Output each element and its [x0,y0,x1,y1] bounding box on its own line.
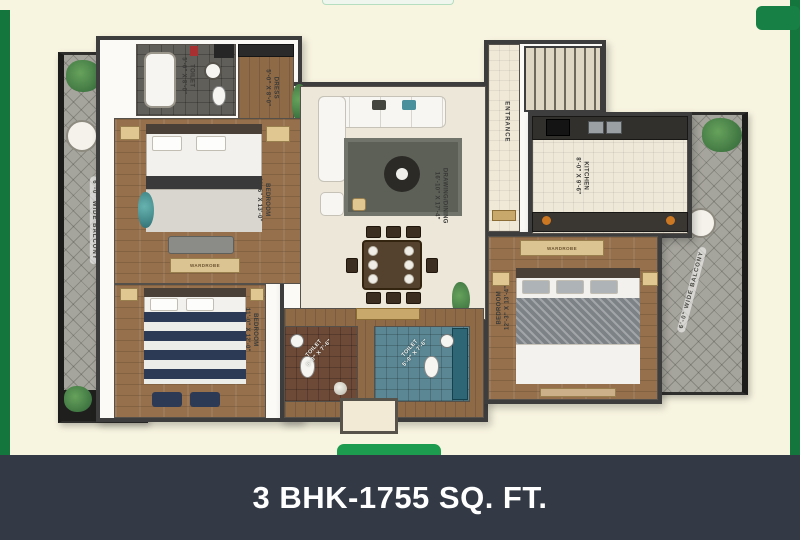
doormat-icon [492,210,516,221]
bench-icon [168,236,234,254]
bed-blanket-icon [146,189,262,232]
chair-icon [346,258,358,273]
nightstand-icon [642,272,658,286]
bed-duvet-icon [144,312,246,384]
room-label-toilet-top: TOILET5'-0" X 8'-0" [179,57,195,94]
sink-icon [588,121,604,134]
room-label-kitchen: KITCHEN8'-0" X 9'-6" [573,157,589,194]
sink-icon [606,121,622,134]
plate-icon [368,260,378,270]
pillow-icon [150,298,178,311]
balcony-table-icon [66,120,98,152]
threshold-icon [356,308,420,320]
bed-duvet-icon [516,298,640,344]
cushion-icon [402,100,416,110]
bed-headboard-icon [516,268,640,278]
plate-icon [368,246,378,256]
nightstand-icon [266,126,290,142]
decor-icon [190,46,198,56]
side-stool-icon [352,198,366,211]
toilet-wc-icon [424,356,439,378]
floor-plan[interactable]: 6'-0" WIDE BALCONY 6'-0" WIDE BALCONY TO… [0,0,800,455]
shower-cabinet-icon [452,328,468,400]
room-label-bedroom-bottom: BEDROOM11'-0" X 12'-0" [242,308,258,352]
plate-icon [368,274,378,284]
plant-icon [334,382,347,395]
pillow-icon [196,136,226,151]
ottoman-icon [152,392,182,407]
stove-icon [546,119,570,136]
ottoman-icon [190,392,220,407]
nightstand-icon [120,288,138,301]
plant-icon [64,386,92,412]
kitchen-counter-icon [532,212,688,232]
room-label-dress: DRESS5'-0" X 8'-0" [263,69,279,106]
plant-icon [138,192,154,228]
dress-cabinet-icon [238,44,294,57]
wardrobe-icon: WARDROBE [520,240,604,256]
pillow-icon [186,298,214,311]
room-label-drawing-dining: DRAWING/DINING16'-10" X 17'-4" [432,168,448,224]
pillow-icon [556,280,584,294]
caption-bar: 3 BHK-1755 SQ. FT. [0,455,800,540]
bed-headboard-icon [144,288,246,297]
room-label-bedroom-left: BEDROOM11'-6" X 13'-0" [254,178,270,222]
chair-icon [406,226,421,238]
bathtub-icon [144,52,176,108]
bed-sheet-icon [516,344,640,384]
room-label-bedroom-right: BEDROOM12'-3" X 13'-4" [496,286,512,330]
pillow-icon [152,136,182,151]
armchair-icon [320,192,344,216]
chair-icon [406,292,421,304]
nightstand-icon [120,126,140,140]
chair-icon [386,226,401,238]
washbasin-icon [204,62,222,80]
plate-icon [404,274,414,284]
nightstand-icon [492,272,510,286]
sofa-arm-icon [318,96,346,182]
toilet-wc-icon [212,86,226,106]
plate-icon [404,246,414,256]
entry-door-block [340,398,398,434]
bench-icon [540,388,616,397]
plan-title: 3 BHK-1755 SQ. FT. [253,480,548,516]
room-label-entrance: ENTRANCE [502,101,510,142]
page: 6'-0" WIDE BALCONY 6'-0" WIDE BALCONY TO… [0,0,800,540]
chair-icon [366,226,381,238]
coffee-table-top-icon [396,168,408,180]
bed-headboard-icon [146,124,262,134]
staircase-icon [524,46,602,112]
plant-icon [702,118,742,152]
pillow-icon [522,280,550,294]
vanity-icon [214,44,234,58]
washbasin-icon [290,334,304,348]
chair-icon [426,258,438,273]
chair-icon [386,292,401,304]
bowl-icon [542,216,551,225]
wardrobe-icon: WARDROBE [170,258,240,273]
chair-icon [366,292,381,304]
bed-throw-icon [146,176,262,189]
washbasin-icon [440,334,454,348]
plate-icon [404,260,414,270]
bowl-icon [666,216,675,225]
cushion-icon [372,100,386,110]
nightstand-icon [250,288,264,301]
pillow-icon [590,280,618,294]
